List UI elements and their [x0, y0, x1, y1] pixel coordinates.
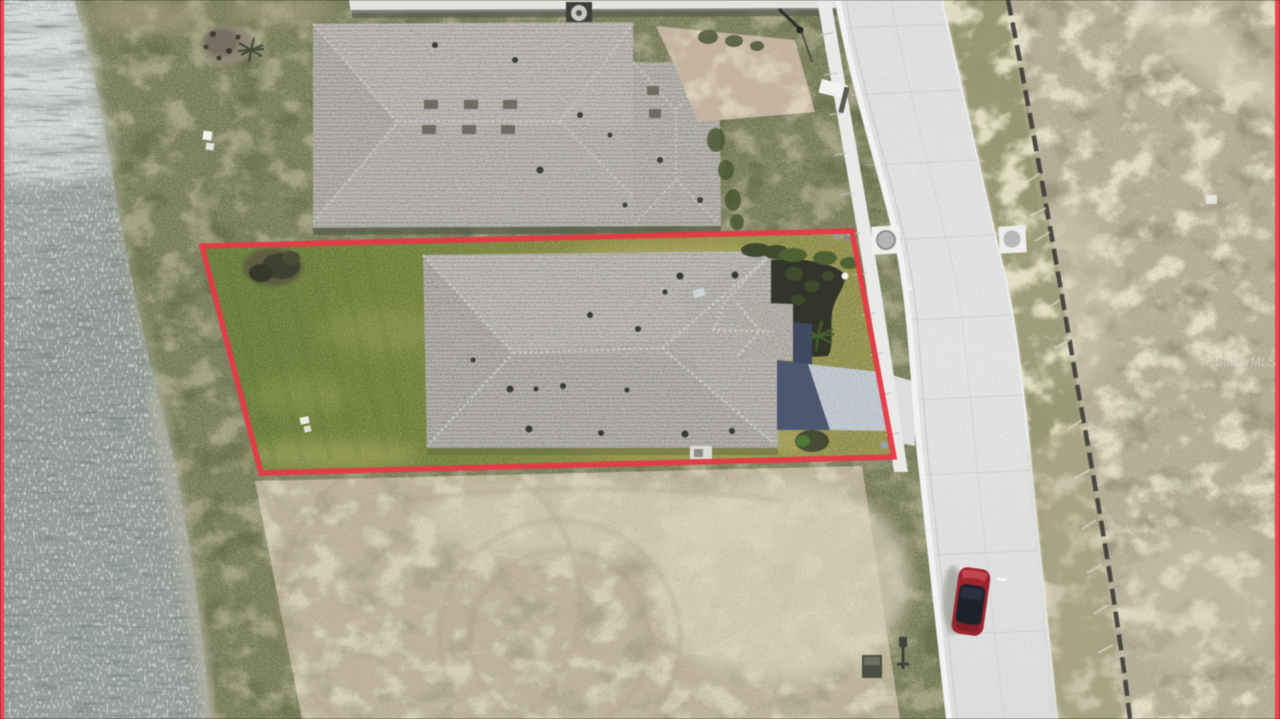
svg-text:StellarMLS: StellarMLS: [1215, 355, 1276, 369]
